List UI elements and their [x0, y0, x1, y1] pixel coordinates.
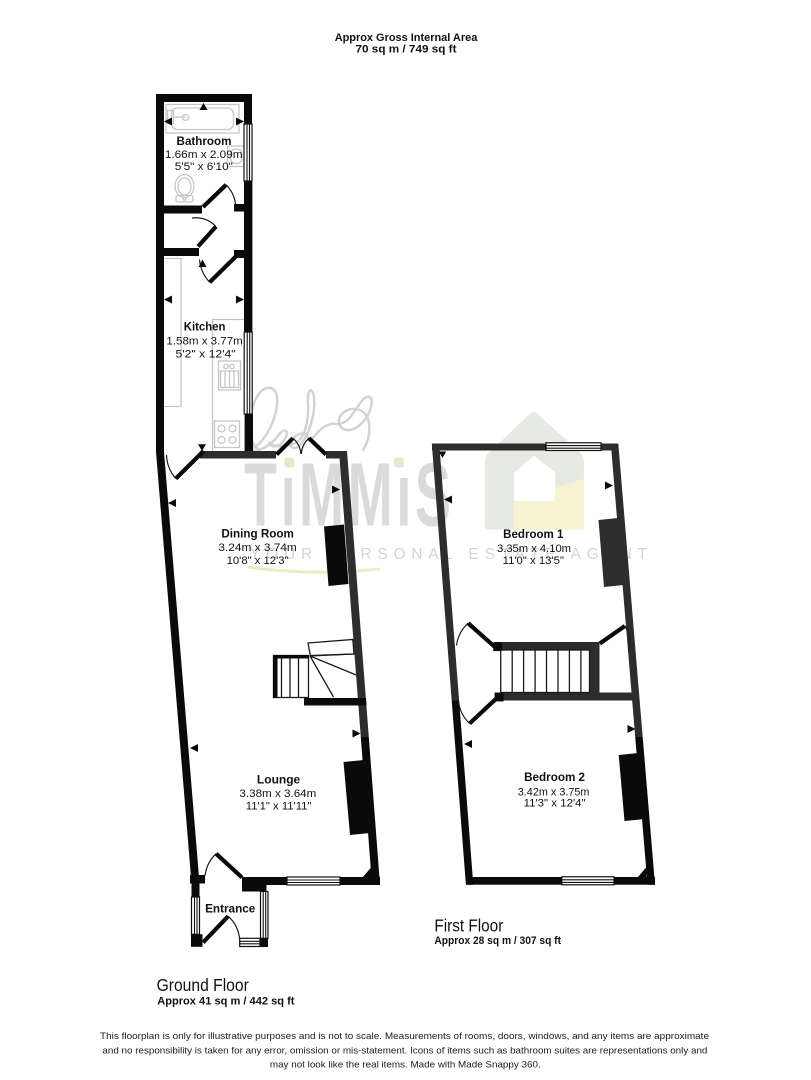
svg-text:Approx 28 sq m / 307 sq ft: Approx 28 sq m / 307 sq ft [434, 935, 561, 947]
svg-text:Dining Room: Dining Room [221, 529, 294, 541]
svg-text:1.58m x 3.77m: 1.58m x 3.77m [166, 336, 242, 348]
svg-text:11'1" x 11'11": 11'1" x 11'11" [246, 801, 312, 813]
svg-text:11'0" x 13'5": 11'0" x 13'5" [503, 555, 564, 567]
svg-text:First Floor: First Floor [434, 916, 503, 936]
svg-text:Kitchen: Kitchen [184, 321, 226, 333]
svg-text:3.42m x 3.75m: 3.42m x 3.75m [518, 786, 590, 798]
svg-text:Entrance: Entrance [205, 904, 255, 916]
svg-text:3.24m x 3.74m: 3.24m x 3.74m [218, 542, 296, 554]
svg-text:Bedroom 2: Bedroom 2 [524, 772, 585, 784]
svg-text:3.35m x 4.10m: 3.35m x 4.10m [497, 543, 571, 555]
svg-text:Ground Floor: Ground Floor [157, 975, 249, 995]
svg-text:Lounge: Lounge [257, 774, 300, 786]
svg-text:Approx Gross Internal Area: Approx Gross Internal Area [335, 32, 478, 44]
svg-text:may not look like the real ite: may not look like the real items. Made w… [270, 1060, 541, 1071]
svg-text:and no responsibility is taken: and no responsibility is taken for any e… [102, 1046, 707, 1057]
svg-text:10'8" x 12'3": 10'8" x 12'3" [227, 555, 289, 567]
svg-text:YOUR PERSONAL ESTATE AGENT: YOUR PERSONAL ESTATE AGENT [250, 546, 653, 563]
svg-text:Bathroom: Bathroom [177, 136, 232, 148]
svg-text:5'5" x 6'10": 5'5" x 6'10" [175, 161, 233, 173]
svg-text:Approx 41 sq m / 442 sq ft: Approx 41 sq m / 442 sq ft [157, 996, 295, 1008]
svg-text:5'2" x 12'4": 5'2" x 12'4" [176, 349, 236, 361]
svg-text:Bedroom 1: Bedroom 1 [503, 529, 564, 541]
svg-text:3.38m x 3.64m: 3.38m x 3.64m [239, 788, 316, 800]
svg-text:1.66m x 2.09m: 1.66m x 2.09m [165, 149, 243, 161]
svg-text:This floorplan is only for ill: This floorplan is only for illustrative … [100, 1031, 709, 1042]
svg-text:11'3" x 12'4": 11'3" x 12'4" [524, 798, 586, 810]
svg-text:70 sq m / 749 sq ft: 70 sq m / 749 sq ft [356, 44, 457, 56]
